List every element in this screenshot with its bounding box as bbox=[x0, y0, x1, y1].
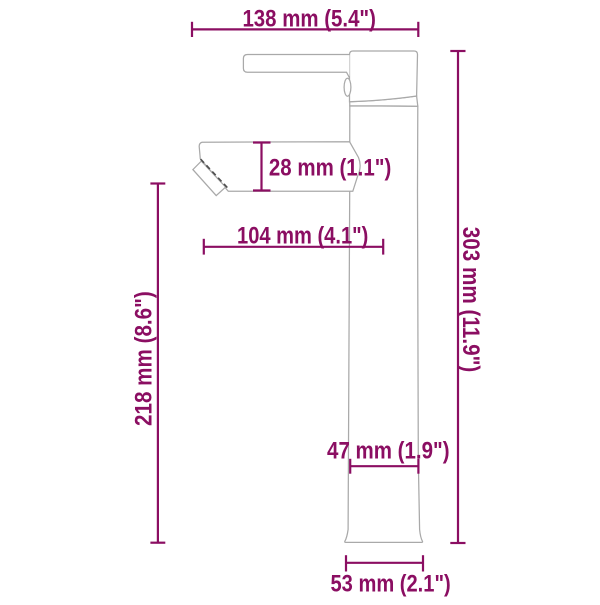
svg-text:303 mm (11.9"): 303 mm (11.9") bbox=[457, 227, 484, 373]
svg-text:138 mm (5.4"): 138 mm (5.4") bbox=[242, 6, 376, 33]
svg-text:47 mm (1.9"): 47 mm (1.9") bbox=[327, 438, 450, 465]
svg-text:53 mm (2.1"): 53 mm (2.1") bbox=[331, 570, 451, 597]
svg-text:28 mm (1.1"): 28 mm (1.1") bbox=[269, 155, 391, 182]
svg-text:104 mm (4.1"): 104 mm (4.1") bbox=[237, 222, 368, 249]
svg-text:218 mm (8.6"): 218 mm (8.6") bbox=[131, 291, 158, 426]
